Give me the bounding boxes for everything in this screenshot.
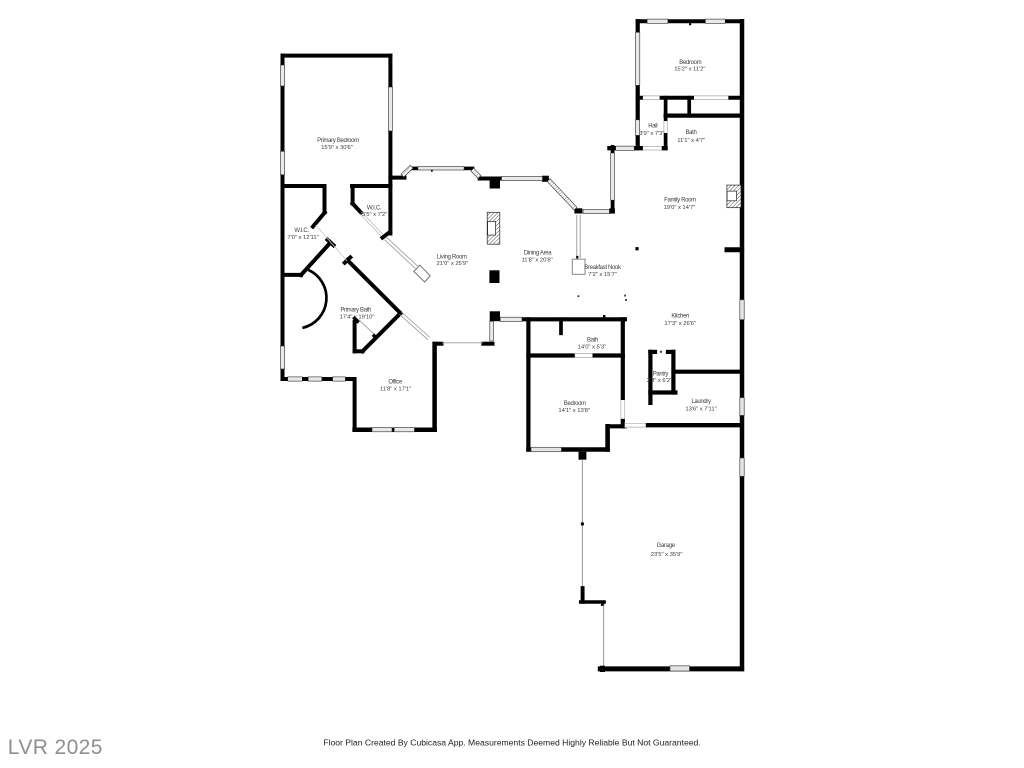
svg-text:14'0" x 5'3": 14'0" x 5'3": [578, 345, 606, 351]
svg-text:Laundry: Laundry: [691, 399, 711, 405]
svg-text:7'2" x 15'7": 7'2" x 15'7": [588, 272, 616, 278]
svg-text:15'2" x 11'2": 15'2" x 11'2": [674, 66, 705, 72]
svg-text:23'5" x 35'9": 23'5" x 35'9": [651, 552, 683, 558]
svg-text:Family Room: Family Room: [664, 198, 696, 204]
svg-text:Dining Area: Dining Area: [524, 251, 552, 257]
svg-text:3'3" x 6'2": 3'3" x 6'2": [647, 378, 672, 384]
svg-text:15'9" x 30'6": 15'9" x 30'6": [321, 145, 353, 151]
svg-text:Garage: Garage: [657, 543, 676, 549]
svg-text:Breakfast Nook: Breakfast Nook: [584, 265, 622, 271]
svg-text:14'1" x 13'8": 14'1" x 13'8": [558, 408, 590, 414]
svg-text:LVR 2025: LVR 2025: [8, 736, 103, 759]
svg-text:Primary Bedroom: Primary Bedroom: [317, 138, 359, 144]
svg-text:5'5" x 7'2": 5'5" x 7'2": [362, 212, 387, 218]
svg-text:W.I.C.: W.I.C.: [367, 206, 382, 212]
svg-text:Pantry: Pantry: [653, 371, 669, 377]
svg-text:Office: Office: [388, 380, 403, 386]
svg-text:7'0" x 12'11": 7'0" x 12'11": [287, 235, 318, 241]
svg-text:W.I.C.: W.I.C.: [294, 228, 309, 234]
svg-text:Bath: Bath: [587, 337, 598, 343]
svg-text:Kitchen: Kitchen: [671, 314, 689, 320]
svg-text:17'4" x 19'10": 17'4" x 19'10": [340, 314, 375, 320]
svg-text:17'3" x 26'6": 17'3" x 26'6": [664, 321, 696, 327]
svg-text:11'8" x 20'8": 11'8" x 20'8": [521, 257, 552, 263]
svg-text:11'8" x 17'1": 11'8" x 17'1": [380, 387, 411, 393]
svg-text:11'1" x 4'7": 11'1" x 4'7": [677, 138, 705, 144]
svg-text:19'0" x 14'7": 19'0" x 14'7": [664, 205, 696, 211]
svg-text:Hall: Hall: [648, 124, 657, 130]
svg-text:Bath: Bath: [685, 130, 696, 136]
svg-text:13'6" x 7'11": 13'6" x 7'11": [685, 407, 716, 413]
svg-text:Bedroom: Bedroom: [679, 60, 701, 66]
svg-text:21'0" x 25'9": 21'0" x 25'9": [436, 261, 468, 267]
svg-text:Floor Plan Created By Cubicasa: Floor Plan Created By Cubicasa App. Meas…: [323, 738, 700, 748]
svg-text:Primary Bath: Primary Bath: [340, 307, 371, 313]
svg-text:3'9" x 7'3": 3'9" x 7'3": [639, 131, 664, 137]
svg-text:Living Room: Living Room: [437, 254, 467, 260]
svg-text:Bedroom: Bedroom: [564, 401, 586, 407]
